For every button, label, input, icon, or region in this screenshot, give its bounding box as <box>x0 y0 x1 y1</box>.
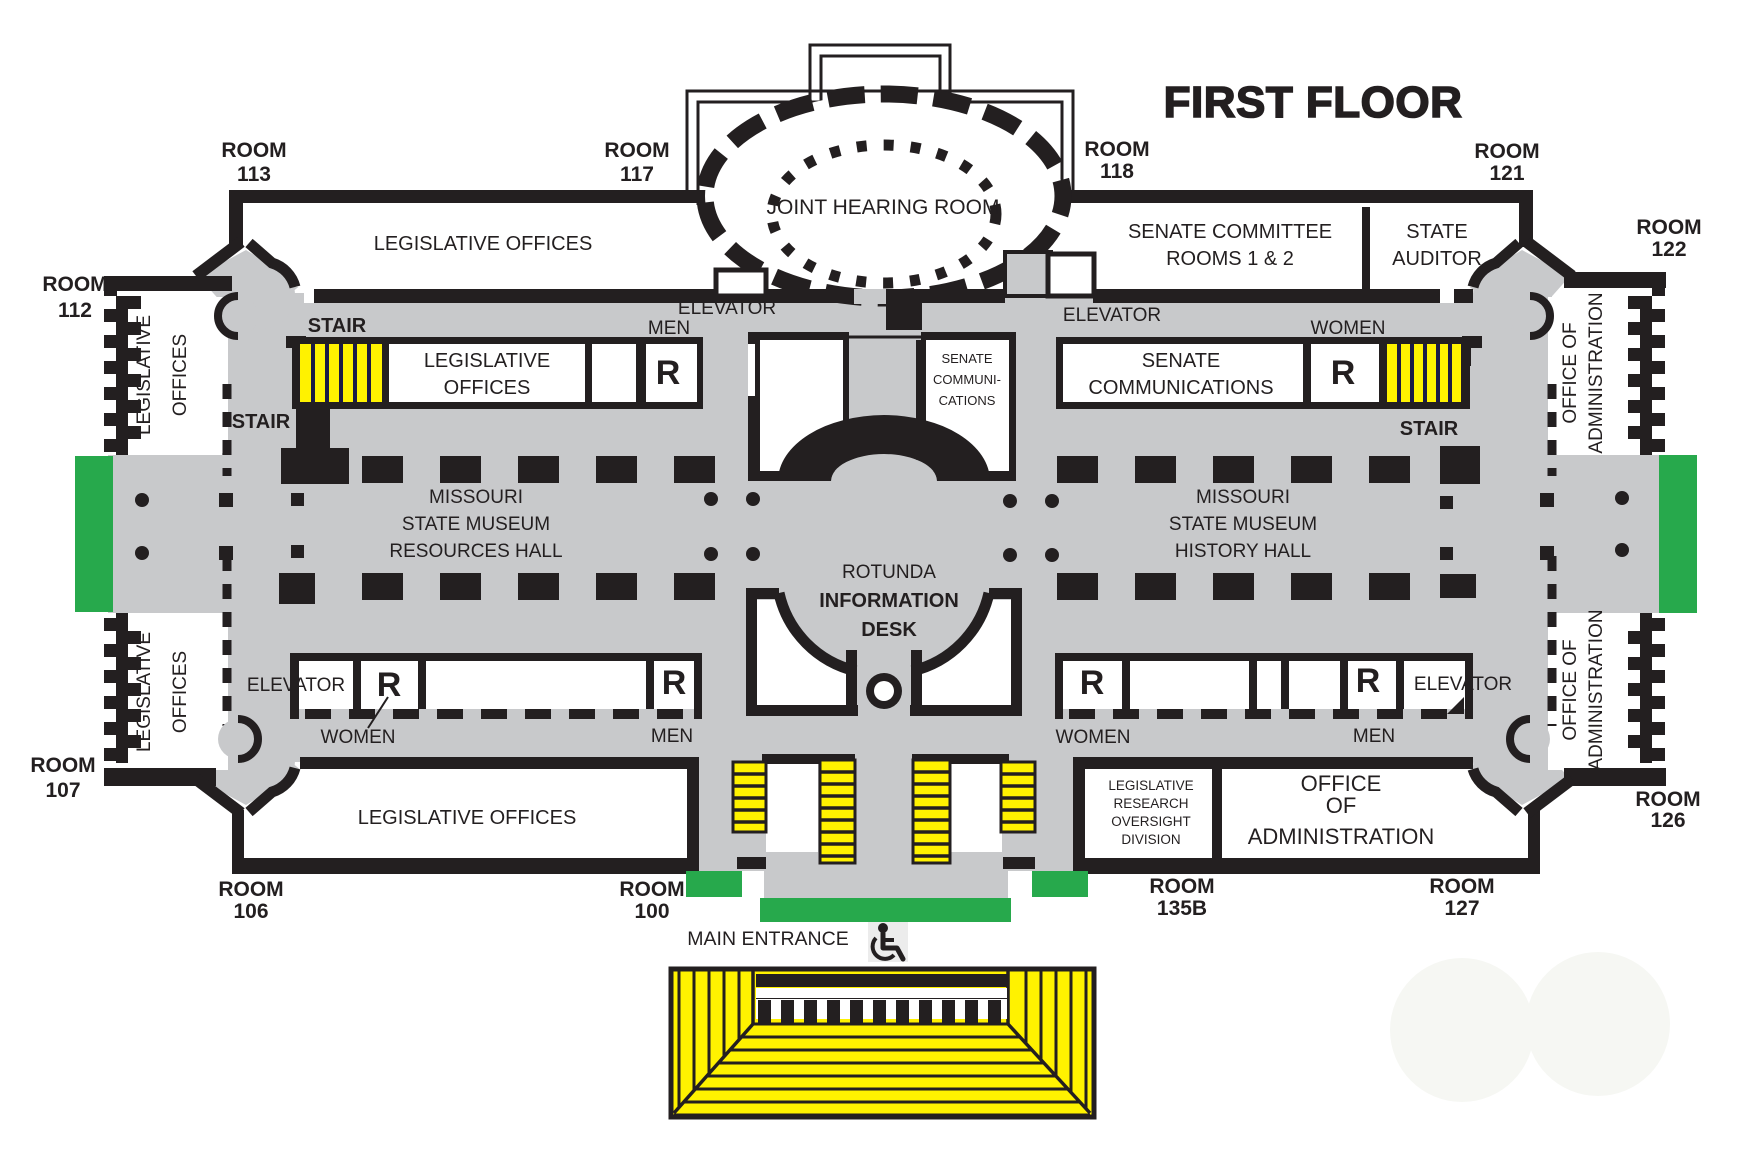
svg-text:126: 126 <box>1650 809 1685 832</box>
svg-text:R: R <box>377 666 402 704</box>
svg-text:OFFICES: OFFICES <box>444 377 531 399</box>
svg-text:DESK: DESK <box>861 619 917 641</box>
svg-text:WOMEN: WOMEN <box>1056 727 1131 748</box>
svg-text:ROOM: ROOM <box>1149 875 1214 898</box>
svg-text:ELEVATOR: ELEVATOR <box>1063 305 1161 326</box>
svg-text:SENATE: SENATE <box>941 351 992 366</box>
svg-text:LEGISLATIVE: LEGISLATIVE <box>1108 778 1193 793</box>
svg-text:127: 127 <box>1444 897 1479 920</box>
svg-text:ELEVATOR: ELEVATOR <box>247 675 345 696</box>
svg-text:MISSOURI: MISSOURI <box>429 487 523 508</box>
svg-text:112: 112 <box>58 299 92 322</box>
svg-text:LEGISLATIVE OFFICES: LEGISLATIVE OFFICES <box>358 807 577 829</box>
svg-text:R: R <box>1356 662 1381 700</box>
svg-text:ROOM: ROOM <box>1636 216 1701 239</box>
svg-text:106: 106 <box>233 900 268 923</box>
svg-text:R: R <box>1331 354 1356 392</box>
svg-text:OFFICES: OFFICES <box>170 651 191 733</box>
svg-text:ADMINISTRATION: ADMINISTRATION <box>1586 609 1607 770</box>
svg-text:ROOM: ROOM <box>221 139 286 162</box>
svg-text:100: 100 <box>634 900 669 923</box>
svg-text:LEGISLATIVE OFFICES: LEGISLATIVE OFFICES <box>374 233 593 255</box>
svg-text:122: 122 <box>1651 238 1686 261</box>
svg-text:AUDITOR: AUDITOR <box>1392 248 1482 270</box>
svg-text:STAIR: STAIR <box>232 411 291 433</box>
svg-text:STAIR: STAIR <box>308 315 367 337</box>
svg-text:STATE MUSEUM: STATE MUSEUM <box>402 514 550 535</box>
svg-text:ROOM: ROOM <box>218 878 283 901</box>
svg-text:MEN: MEN <box>648 318 690 339</box>
svg-text:ROOM: ROOM <box>1084 138 1149 161</box>
svg-text:RESOURCES HALL: RESOURCES HALL <box>389 541 562 562</box>
svg-text:ROOM: ROOM <box>1635 788 1700 811</box>
svg-text:WOMEN: WOMEN <box>321 727 396 748</box>
svg-text:R: R <box>656 354 681 392</box>
svg-text:SENATE: SENATE <box>1142 350 1221 372</box>
svg-text:ROOM: ROOM <box>42 273 107 296</box>
svg-text:ROTUNDA: ROTUNDA <box>842 562 936 583</box>
svg-text:ADMINISTRATION: ADMINISTRATION <box>1248 824 1435 849</box>
svg-text:OFFICE OF: OFFICE OF <box>1560 322 1581 423</box>
svg-text:JOINT HEARING ROOM: JOINT HEARING ROOM <box>767 196 1000 219</box>
svg-text:ROOMS 1 & 2: ROOMS 1 & 2 <box>1166 248 1294 270</box>
svg-text:ROOM: ROOM <box>1429 875 1494 898</box>
svg-text:INFORMATION: INFORMATION <box>819 590 959 612</box>
svg-text:OVERSIGHT: OVERSIGHT <box>1111 814 1191 829</box>
svg-text:118: 118 <box>1100 160 1134 183</box>
svg-text:HISTORY HALL: HISTORY HALL <box>1175 541 1311 562</box>
svg-text:OFFICES: OFFICES <box>170 334 191 416</box>
svg-text:ROOM: ROOM <box>1474 140 1539 163</box>
svg-text:ADMINISTRATION: ADMINISTRATION <box>1586 292 1607 453</box>
svg-text:RESEARCH: RESEARCH <box>1113 796 1188 811</box>
svg-text:121: 121 <box>1489 162 1524 185</box>
svg-text:STATE: STATE <box>1406 221 1467 243</box>
svg-text:STATE MUSEUM: STATE MUSEUM <box>1169 514 1317 535</box>
svg-text:FIRST FLOOR: FIRST FLOOR <box>1164 78 1463 127</box>
svg-text:WOMEN: WOMEN <box>1311 318 1386 339</box>
svg-text:ROOM: ROOM <box>604 139 669 162</box>
svg-text:LEGISLATIVE: LEGISLATIVE <box>424 350 550 372</box>
svg-text:ROOM: ROOM <box>30 754 95 777</box>
svg-text:COMMUNI-: COMMUNI- <box>933 372 1001 387</box>
svg-text:107: 107 <box>45 779 80 802</box>
svg-text:ROOM: ROOM <box>619 878 684 901</box>
svg-text:MEN: MEN <box>651 726 693 747</box>
svg-text:COMMUNICATIONS: COMMUNICATIONS <box>1088 377 1273 399</box>
svg-text:OFFICE OF: OFFICE OF <box>1560 639 1581 740</box>
svg-text:STAIR: STAIR <box>1400 418 1459 440</box>
svg-text:OF: OF <box>1326 793 1357 818</box>
svg-text:R: R <box>662 664 687 702</box>
svg-text:117: 117 <box>620 163 654 186</box>
svg-text:113: 113 <box>237 163 271 186</box>
svg-text:CATIONS: CATIONS <box>939 393 996 408</box>
svg-text:R: R <box>1080 664 1105 702</box>
svg-text:135B: 135B <box>1157 897 1207 920</box>
svg-text:ELEVATOR: ELEVATOR <box>678 298 776 319</box>
svg-text:ELEVATOR: ELEVATOR <box>1414 674 1512 695</box>
svg-text:DIVISION: DIVISION <box>1121 832 1180 847</box>
svg-text:MEN: MEN <box>1353 726 1395 747</box>
svg-text:SENATE COMMITTEE: SENATE COMMITTEE <box>1128 221 1332 243</box>
svg-text:MAIN ENTRANCE: MAIN ENTRANCE <box>687 928 848 950</box>
svg-text:MISSOURI: MISSOURI <box>1196 487 1290 508</box>
